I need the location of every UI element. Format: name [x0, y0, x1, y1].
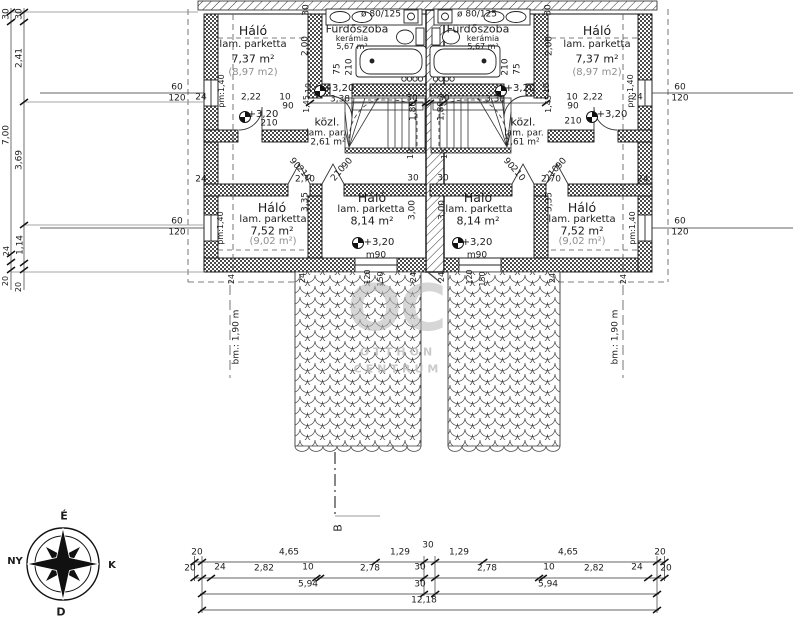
dim-label: 1,45: [545, 95, 553, 113]
room-name-halo-top-left: Háló: [239, 25, 267, 38]
dim-label: 12,18: [411, 597, 437, 606]
room-area-halo-bottom-inner-right: 8,14 m²: [456, 216, 499, 227]
dim-label: 210: [502, 58, 511, 75]
dim-label: 24: [637, 176, 648, 185]
dim-label: 10: [302, 564, 313, 573]
dim-label: 4,65: [279, 549, 299, 558]
dim-label: 24: [299, 273, 307, 283]
dim-label: 90: [567, 103, 578, 112]
door-label: m90: [467, 252, 487, 261]
dim-label: 30: [3, 8, 12, 19]
room-floor-halo-bottom-inner-right: lam. parketta: [445, 205, 512, 215]
room-floor-halo-bottom-outer-right: lam. parketta: [548, 215, 615, 225]
vent-label-right: ø 80/125: [457, 11, 497, 20]
dim-label: 5,94: [538, 581, 558, 590]
room-area-gross-halo-top-left: (8,97 m2): [228, 68, 277, 78]
compass-south-label: D: [56, 607, 65, 618]
room-area-gross-halo-top-right: (8,97 m2): [572, 68, 621, 78]
watermark-logo: OC: [347, 277, 444, 341]
dim-label: 24: [631, 564, 642, 573]
vent-label-left: ø 80/125: [361, 11, 401, 20]
dim-label: 75: [334, 63, 343, 74]
dim-label: 10: [543, 564, 554, 573]
watermark-text-line2: CENTRUM: [354, 364, 443, 375]
dim-label: 210: [346, 58, 355, 75]
room-area-halo-bottom-outer-left: 7,52 m²: [250, 226, 293, 237]
compass-east-label: K: [108, 561, 116, 571]
door-size-label: 210: [330, 165, 348, 184]
dim-label: 7,00: [3, 125, 12, 145]
dim-label: 30: [407, 175, 418, 184]
room-area-bathroom-left: 5,67 m²: [336, 43, 367, 51]
window-size-label: 120: [671, 95, 688, 104]
dim-label: 210: [260, 120, 277, 129]
room-name-halo-bottom-outer-right: Háló: [568, 202, 596, 215]
dim-label: 30: [422, 542, 433, 551]
dim-label: 24: [620, 274, 628, 284]
dim-label: 30: [545, 4, 554, 15]
dim-label: pm:1,40: [627, 74, 635, 107]
dim-label: 2,22: [583, 94, 603, 103]
dim-label: 3,00: [439, 200, 448, 220]
labels-layer: Hálólam. parketta7,37 m²(8,97 m2)Fürdősz…: [0, 0, 800, 641]
dim-label: 1,29: [449, 549, 469, 558]
dim-label: 1,80: [410, 101, 419, 121]
level-label: +3,20: [324, 84, 355, 94]
dim-label: 30: [16, 8, 25, 19]
dim-label: 20: [660, 565, 671, 574]
room-area-halo-bottom-inner-left: 8,14 m²: [350, 216, 393, 227]
window-size-label: 60: [674, 218, 685, 227]
dim-label: 24: [631, 94, 642, 103]
dim-label: 1,45: [303, 95, 311, 113]
dim-label: 20: [191, 549, 202, 558]
room-area-hall-right: 2,61 m²: [504, 139, 539, 148]
dim-label: 3,35: [546, 192, 555, 212]
window-size-label: 60: [171, 218, 182, 227]
dim-label: 10: [407, 149, 415, 159]
floor-plan-drawing: Hálólam. parketta7,37 m²(8,97 m2)Fürdősz…: [0, 0, 800, 641]
dim-label: 1,29: [390, 549, 410, 558]
window-size-label: 60: [674, 84, 685, 93]
dim-label: 3,38: [330, 96, 350, 105]
door-label: m90: [366, 252, 386, 261]
room-area-halo-top-left: 7,37 m²: [231, 54, 274, 65]
dim-label: 2,78: [477, 565, 497, 574]
dim-label: 2,78: [360, 565, 380, 574]
dim-label: 3,38: [485, 96, 505, 105]
room-floor-halo-bottom-outer-left: lam. parketta: [239, 215, 306, 225]
room-area-gross-halo-bottom-outer-right: (9,02 m²): [559, 237, 606, 247]
room-area-bathroom-right: 5,67 m²: [467, 43, 498, 51]
compass-west-label: NY: [7, 557, 23, 567]
watermark-text-line1: OTTHON: [360, 347, 436, 358]
dim-label: 20: [2, 276, 10, 286]
dim-label: 30: [414, 581, 425, 590]
height-line-label-right: bm.: 1,90 m: [612, 310, 621, 365]
dim-label: 10: [543, 83, 551, 93]
dim-label: 150: [479, 271, 487, 286]
dim-label: 30: [437, 175, 448, 184]
dim-label: 10: [305, 83, 313, 93]
room-name-bathroom-left: Fürdőszoba: [326, 24, 389, 35]
dim-label: 2,82: [584, 565, 604, 574]
height-line-label-left: bm.: 1,90 m: [233, 310, 242, 365]
dim-label: 24: [195, 176, 206, 185]
room-name-bathroom-right: Fürdőszoba: [447, 24, 510, 35]
level-label: +3,20: [462, 238, 493, 248]
dim-label: 24: [228, 274, 236, 284]
dim-label: 3,69: [16, 150, 25, 170]
room-name-hall-right: közl.: [510, 117, 535, 128]
dim-label: 24: [195, 94, 206, 103]
room-floor-halo-top-right: lam. parketta: [563, 40, 630, 50]
window-size-label: 120: [168, 95, 185, 104]
dim-label: 10: [441, 149, 449, 159]
dim-label: 2,82: [254, 565, 274, 574]
dim-label: 2,41: [16, 48, 25, 68]
dim-label: pm:1,40: [629, 211, 637, 244]
room-name-halo-bottom-outer-left: Háló: [258, 202, 286, 215]
dim-label: 20: [184, 565, 195, 574]
dim-label: 210: [564, 118, 581, 127]
dim-label: 120: [466, 269, 474, 284]
dim-label: 1,14: [17, 235, 26, 255]
room-name-halo-bottom-inner-left: Háló: [358, 192, 386, 205]
window-size-label: 120: [168, 229, 185, 238]
dim-label: 90: [282, 103, 293, 112]
dim-label: 75: [514, 63, 523, 74]
dim-label: 20: [654, 549, 665, 558]
dim-label: 1,80: [438, 101, 447, 121]
room-floor-halo-top-left: lam. parketta: [219, 40, 286, 50]
dim-label: 2,00: [546, 36, 555, 56]
room-floor-halo-bottom-inner-left: lam. parketta: [337, 205, 404, 215]
dim-label: 3,00: [409, 200, 418, 220]
window-size-label: 60: [171, 84, 182, 93]
room-area-hall-left: 2,61 m²: [310, 139, 345, 148]
dim-label: pm:1,40: [218, 74, 226, 107]
compass-north-label: É: [60, 511, 68, 522]
dim-label: 30: [303, 4, 312, 15]
dim-label: 30: [414, 564, 425, 573]
room-area-gross-halo-bottom-outer-left: (9,02 m²): [250, 237, 297, 247]
window-size-label: 120: [671, 229, 688, 238]
room-area-halo-bottom-outer-right: 7,52 m²: [560, 226, 603, 237]
dim-label: 24: [549, 273, 557, 283]
dim-label: 5,94: [298, 581, 318, 590]
dim-label: 2,00: [302, 36, 311, 56]
room-area-halo-top-right: 7,37 m²: [575, 54, 618, 65]
room-name-halo-bottom-inner-right: Háló: [464, 192, 492, 205]
level-label: +3,20: [505, 84, 536, 94]
dim-label: pm:1,40: [217, 211, 225, 244]
dim-label: 24: [214, 564, 225, 573]
dim-label: 2,22: [241, 94, 261, 103]
room-name-hall-left: közl.: [314, 117, 339, 128]
dim-label: 24: [3, 246, 11, 256]
section-mark-label: B: [333, 524, 344, 532]
dim-label: 20: [15, 282, 23, 292]
dim-label: 3,35: [302, 192, 311, 212]
dim-label: 4,65: [558, 549, 578, 558]
level-label: +3,20: [364, 238, 395, 248]
door-size-label: 210: [508, 165, 526, 184]
level-label: +3,20: [597, 110, 628, 120]
room-name-halo-top-right: Háló: [583, 25, 611, 38]
